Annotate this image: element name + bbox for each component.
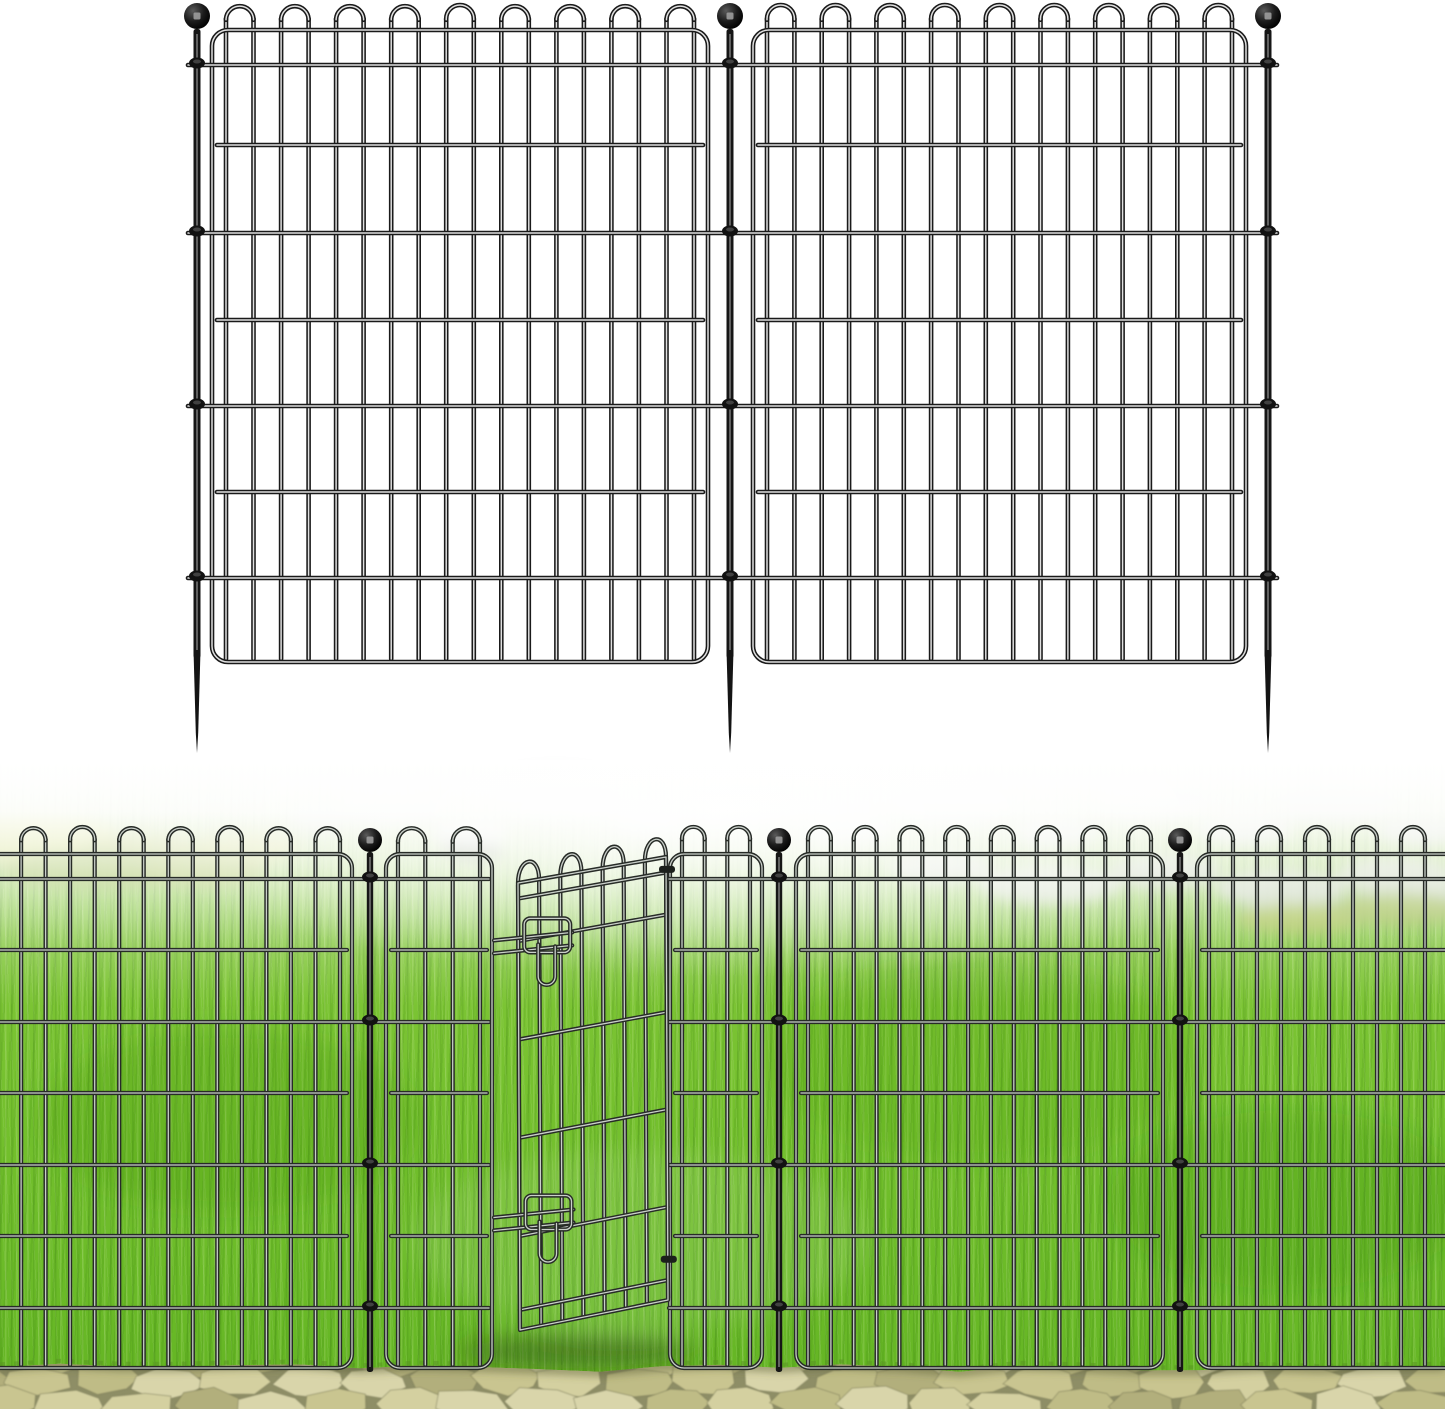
fence-panel [796, 827, 1163, 1368]
fence-post [1168, 828, 1192, 1372]
fence-panel [1197, 827, 1445, 1368]
product-image [0, 0, 1445, 1409]
fence-post [358, 828, 382, 1372]
installed-fence [0, 0, 1445, 1409]
gate-hinge [661, 1256, 677, 1263]
fence-panel [386, 828, 492, 1368]
fence-post [767, 828, 791, 1372]
gate [494, 839, 677, 1330]
fence-panel [0, 827, 352, 1368]
gate-hinge [659, 866, 675, 873]
fence-panel [670, 827, 762, 1368]
